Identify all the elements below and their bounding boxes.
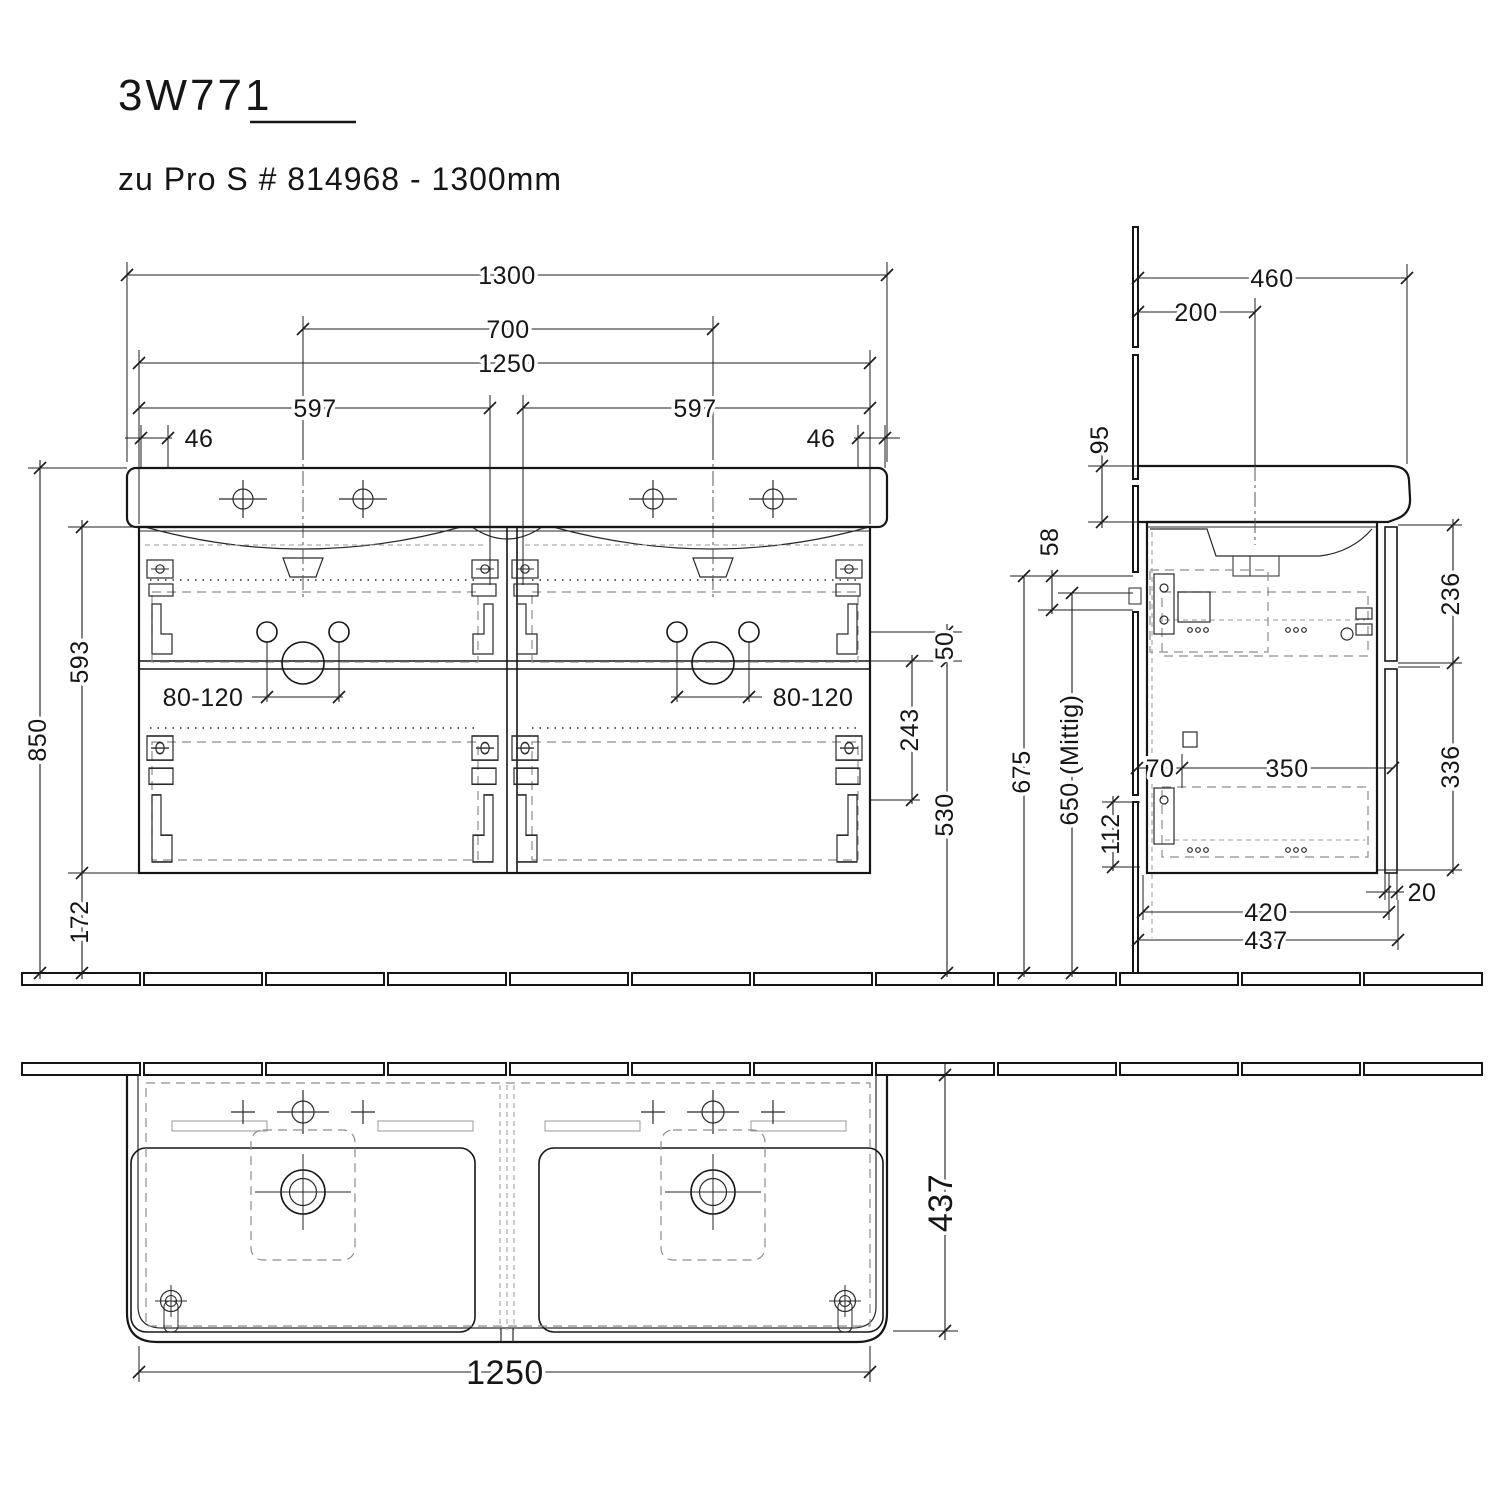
front-view: 1300 700 1250 597 597 46 46 850 593 172 … <box>24 262 1133 979</box>
dim-front-left-drawer: 597 <box>293 395 336 423</box>
side-cabinet <box>1147 466 1397 938</box>
plan-view: 1250 437 <box>127 1063 960 1392</box>
plan-overflow-holes <box>155 1285 861 1332</box>
plan-cabinet-hidden-outline <box>146 1083 870 1326</box>
dim-side-total-depth: 460 <box>1250 265 1293 293</box>
dim-front-total-height: 850 <box>24 718 52 761</box>
dim-side-rail-length: 350 <box>1265 755 1308 783</box>
front-siphon-cutouts <box>257 622 759 684</box>
drawer-split-line <box>139 661 870 669</box>
product-description: zu Pro S # 814968 - 1300mm <box>118 161 562 197</box>
drawer-center-gap <box>507 527 517 873</box>
front-dimensions: 1300 700 1250 597 597 46 46 850 593 172 … <box>24 262 1133 979</box>
plan-right-bowl <box>539 1148 883 1332</box>
side-wall-line <box>1129 227 1141 973</box>
dim-plan-ceramic-depth: 437 <box>922 1174 960 1232</box>
dim-front-right-offset: 46 <box>807 425 836 453</box>
plan-faucet-holes <box>231 1090 785 1134</box>
dim-outlet-zone-height: 58 <box>1036 528 1064 557</box>
dim-front-left-offset: 46 <box>185 425 214 453</box>
wall-outlet-fitting <box>1129 588 1141 604</box>
dim-front-cabinet-width: 1250 <box>478 350 536 378</box>
dim-front-right-drawer: 597 <box>673 395 716 423</box>
dim-front-right-supply-zone: 80-120 <box>773 684 854 712</box>
plan-deck-edges <box>172 1121 846 1131</box>
dim-side-faucet-wall-distance: 200 <box>1174 299 1217 327</box>
plan-drain-holes <box>255 1154 761 1230</box>
front-drawer-hardware <box>147 560 862 862</box>
upper-drawer-front <box>1385 527 1397 661</box>
dim-plan-ceramic-width: 1250 <box>466 1354 544 1392</box>
vanity-dimension-drawing: 3W771 zu Pro S # 814968 - 1300mm <box>0 0 1500 1500</box>
dim-side-upper-section: 236 <box>1437 572 1465 615</box>
dim-outlet-center-height: 650 (Mittig) <box>1056 694 1084 825</box>
dim-front-zone-gap: 50 <box>931 632 959 661</box>
front-faucet-holes <box>219 480 797 518</box>
side-mounting-hardware <box>1154 574 1372 852</box>
dim-front-drain-drop: 243 <box>896 708 924 751</box>
floor-line <box>22 973 1482 985</box>
dim-front-total-width: 1300 <box>478 262 536 290</box>
title-block: 3W771 zu Pro S # 814968 - 1300mm <box>118 71 562 197</box>
dim-front-left-supply-zone: 80-120 <box>163 684 244 712</box>
dim-side-overall-depth: 437 <box>1244 927 1287 955</box>
technical-drawing-page: 3W771 zu Pro S # 814968 - 1300mm <box>0 0 1500 1500</box>
model-code: 3W771 <box>118 71 272 120</box>
dim-front-bottom-clearance: 172 <box>66 900 94 943</box>
dim-side-front-thickness: 20 <box>1408 879 1437 907</box>
dim-front-faucet-distance: 700 <box>486 316 529 344</box>
dim-front-cabinet-height: 593 <box>66 640 94 683</box>
dim-side-lower-rail-height: 112 <box>1097 813 1125 854</box>
side-dimensions: 460 200 95 236 336 70 350 112 20 420 437 <box>1086 264 1465 955</box>
dim-front-drain-height: 530 <box>931 793 959 836</box>
plan-wall-line <box>22 1063 1482 1075</box>
front-cabinet <box>139 527 870 873</box>
side-view: 460 200 95 236 336 70 350 112 20 420 437 <box>1086 227 1465 973</box>
dim-side-rail-offset: 70 <box>1146 755 1175 783</box>
dim-outlet-top-height: 675 <box>1008 750 1036 793</box>
dim-side-cabinet-depth: 420 <box>1244 899 1287 927</box>
dim-side-lower-section: 336 <box>1437 745 1465 788</box>
dim-side-basin-front-height: 95 <box>1086 426 1114 455</box>
